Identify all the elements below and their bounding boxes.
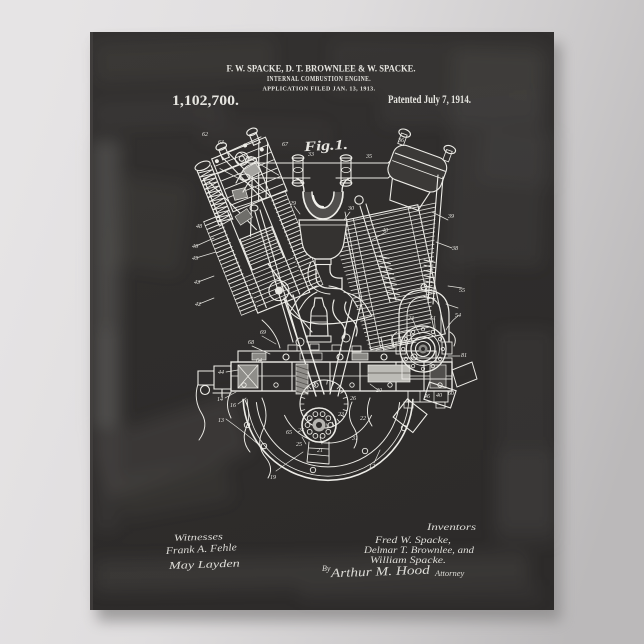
svg-text:35: 35 bbox=[365, 154, 372, 160]
svg-text:INTERNAL COMBUSTION ENGINE.: INTERNAL COMBUSTION ENGINE. bbox=[267, 76, 371, 83]
svg-text:40: 40 bbox=[382, 227, 388, 234]
svg-text:21: 21 bbox=[317, 448, 323, 454]
svg-text:By: By bbox=[322, 564, 331, 573]
svg-text:19: 19 bbox=[270, 475, 276, 481]
svg-text:29: 29 bbox=[290, 201, 296, 207]
svg-text:F. W. SPACKE, D. T. BROWNLEE &: F. W. SPACKE, D. T. BROWNLEE & W. SPACKE… bbox=[227, 64, 416, 74]
svg-text:31: 31 bbox=[351, 436, 358, 442]
svg-text:46: 46 bbox=[424, 393, 430, 400]
svg-text:81: 81 bbox=[461, 353, 467, 359]
svg-text:Patented July 7, 1914.: Patented July 7, 1914. bbox=[388, 94, 471, 106]
svg-text:23: 23 bbox=[338, 412, 344, 418]
svg-text:25: 25 bbox=[296, 442, 302, 448]
svg-text:23: 23 bbox=[408, 316, 414, 322]
svg-text:45: 45 bbox=[192, 255, 198, 262]
svg-text:46: 46 bbox=[192, 243, 198, 250]
svg-text:55: 55 bbox=[459, 288, 465, 294]
svg-text:13: 13 bbox=[218, 418, 224, 424]
svg-text:30: 30 bbox=[347, 206, 354, 212]
svg-text:42: 42 bbox=[195, 301, 201, 308]
svg-text:14: 14 bbox=[217, 396, 223, 403]
svg-text:16: 16 bbox=[230, 403, 236, 409]
svg-text:68: 68 bbox=[248, 340, 254, 346]
svg-text:22: 22 bbox=[360, 416, 366, 422]
svg-text:51: 51 bbox=[430, 316, 436, 322]
svg-text:40: 40 bbox=[436, 392, 442, 399]
svg-text:Witnesses: Witnesses bbox=[174, 532, 224, 544]
svg-text:39: 39 bbox=[447, 214, 454, 220]
svg-text:APPLICATION FILED JAN. 13, 191: APPLICATION FILED JAN. 13, 1913. bbox=[263, 87, 376, 93]
svg-text:54: 54 bbox=[455, 312, 461, 319]
svg-text:69: 69 bbox=[260, 330, 266, 336]
svg-text:26: 26 bbox=[350, 396, 356, 402]
svg-text:48: 48 bbox=[196, 223, 202, 230]
svg-text:Attorney: Attorney bbox=[434, 568, 464, 578]
svg-text:20: 20 bbox=[376, 388, 382, 394]
svg-text:43: 43 bbox=[194, 279, 200, 286]
svg-text:Inventors: Inventors bbox=[426, 523, 477, 533]
svg-text:12: 12 bbox=[369, 464, 375, 470]
svg-text:24: 24 bbox=[298, 427, 304, 434]
svg-text:33: 33 bbox=[307, 152, 314, 158]
svg-text:1,102,700.: 1,102,700. bbox=[172, 93, 239, 109]
svg-text:65: 65 bbox=[286, 430, 292, 436]
svg-text:36: 36 bbox=[397, 138, 404, 144]
svg-text:38: 38 bbox=[451, 246, 458, 252]
svg-text:64: 64 bbox=[256, 357, 262, 364]
svg-text:63: 63 bbox=[218, 140, 224, 146]
svg-text:44: 44 bbox=[218, 369, 224, 376]
svg-text:Fred W. Spacke,: Fred W. Spacke, bbox=[374, 535, 451, 545]
svg-text:62: 62 bbox=[202, 132, 208, 138]
svg-text:66: 66 bbox=[246, 156, 252, 162]
svg-text:67: 67 bbox=[282, 142, 289, 148]
svg-text:60: 60 bbox=[448, 391, 454, 397]
svg-text:Delmar T. Brownlee, and: Delmar T. Brownlee, and bbox=[363, 545, 475, 555]
